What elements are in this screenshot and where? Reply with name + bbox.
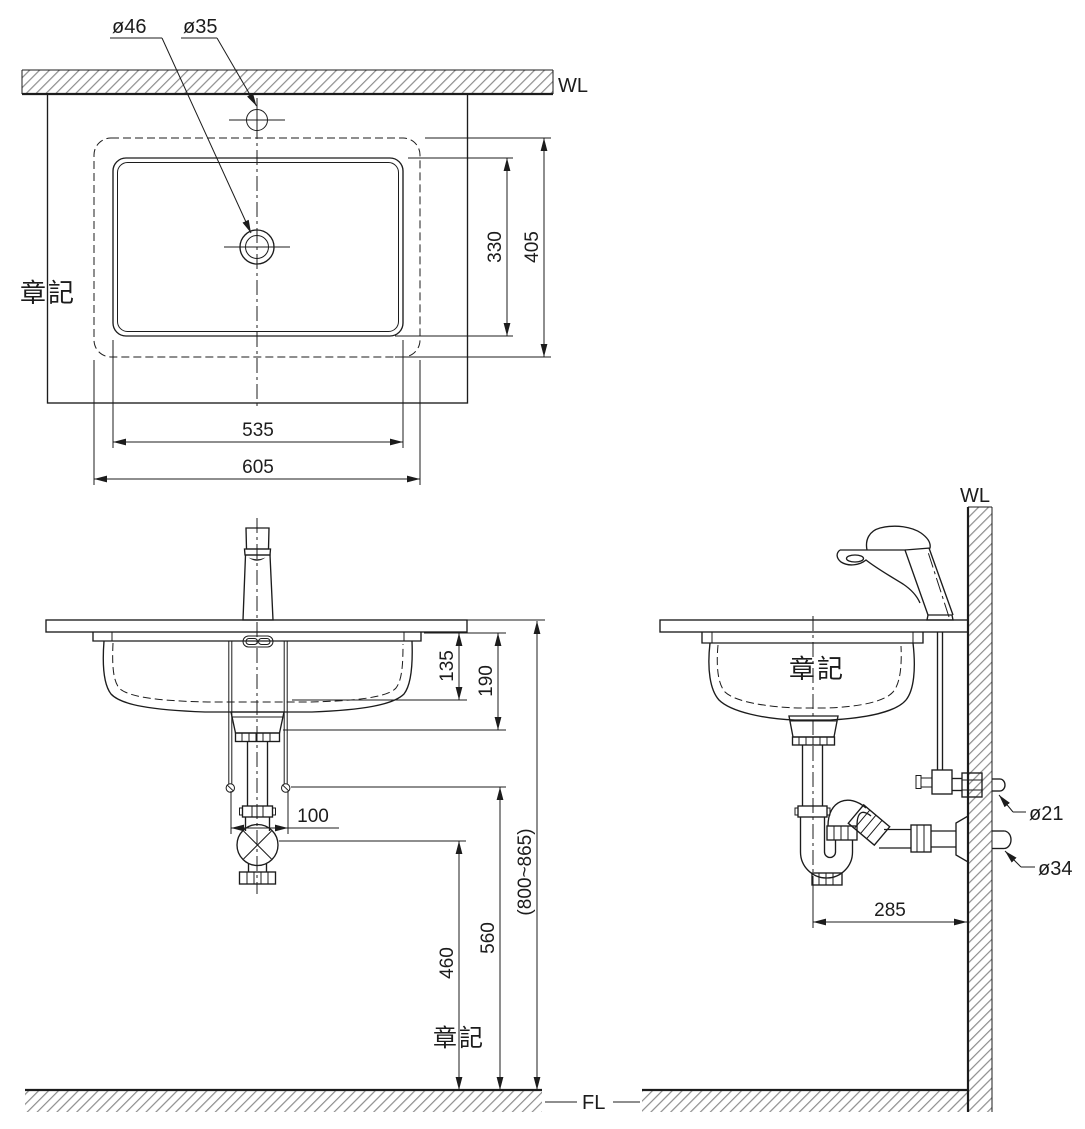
watermark-stamp-side: 章記 <box>789 654 845 684</box>
technical-drawing-page: WL ø46 ø35 330 4 <box>0 0 1085 1129</box>
bowl-inner-dashed-front <box>113 643 403 702</box>
drain-leader <box>162 38 251 233</box>
wall-hatch-side <box>968 507 992 1112</box>
side-view: WL 章記 <box>660 485 1072 1112</box>
dim-535: 535 <box>242 420 274 441</box>
watermark-stamp-top: 章記 <box>20 278 76 308</box>
drain-diameter-label: ø46 <box>112 16 146 38</box>
escutcheon <box>956 816 968 862</box>
dim-560: 560 <box>478 922 499 954</box>
faucet-aerator-side <box>847 555 864 562</box>
faucet-side <box>837 526 953 620</box>
counter-side <box>660 620 968 632</box>
watermark-stamp-front: 章記 <box>433 1025 485 1052</box>
dim-285: 285 <box>874 900 906 921</box>
dim-330: 330 <box>485 231 506 263</box>
dim-100: 100 <box>297 806 329 827</box>
supply-diameter-label: ø21 <box>1029 803 1063 825</box>
floor: FL <box>25 1090 988 1114</box>
outlet-diameter-label: ø34 <box>1038 858 1072 880</box>
floor-hatch-right <box>642 1090 988 1112</box>
p-trap-inner <box>825 852 836 858</box>
floor-hatch-left <box>25 1090 542 1112</box>
wall-line-label-side: WL <box>960 485 990 507</box>
hole-diameter-label: ø35 <box>183 16 217 38</box>
dim-405: 405 <box>522 231 543 263</box>
dim-190: 190 <box>476 665 497 697</box>
sink-installation-drawing: WL ø46 ø35 330 4 <box>0 0 1085 1129</box>
wall-line-label-top: WL <box>558 75 588 97</box>
floor-line-label: FL <box>582 1092 605 1114</box>
dim-605: 605 <box>242 457 274 478</box>
faucet-handle-side <box>867 526 931 550</box>
dim-135: 135 <box>437 650 458 682</box>
supply-leader <box>999 795 1013 812</box>
faucet-front <box>243 528 273 620</box>
top-view: WL ø46 ø35 330 4 <box>20 16 588 485</box>
dim-800-865: (800~865) <box>515 828 536 915</box>
outlet-leader <box>1005 851 1021 867</box>
front-view: 135 190 100 560 460 (800~865) 章記 <box>46 518 545 1090</box>
wall-hatch-top <box>22 70 553 94</box>
dim-460: 460 <box>437 947 458 979</box>
bowl-outline-front <box>103 641 412 712</box>
